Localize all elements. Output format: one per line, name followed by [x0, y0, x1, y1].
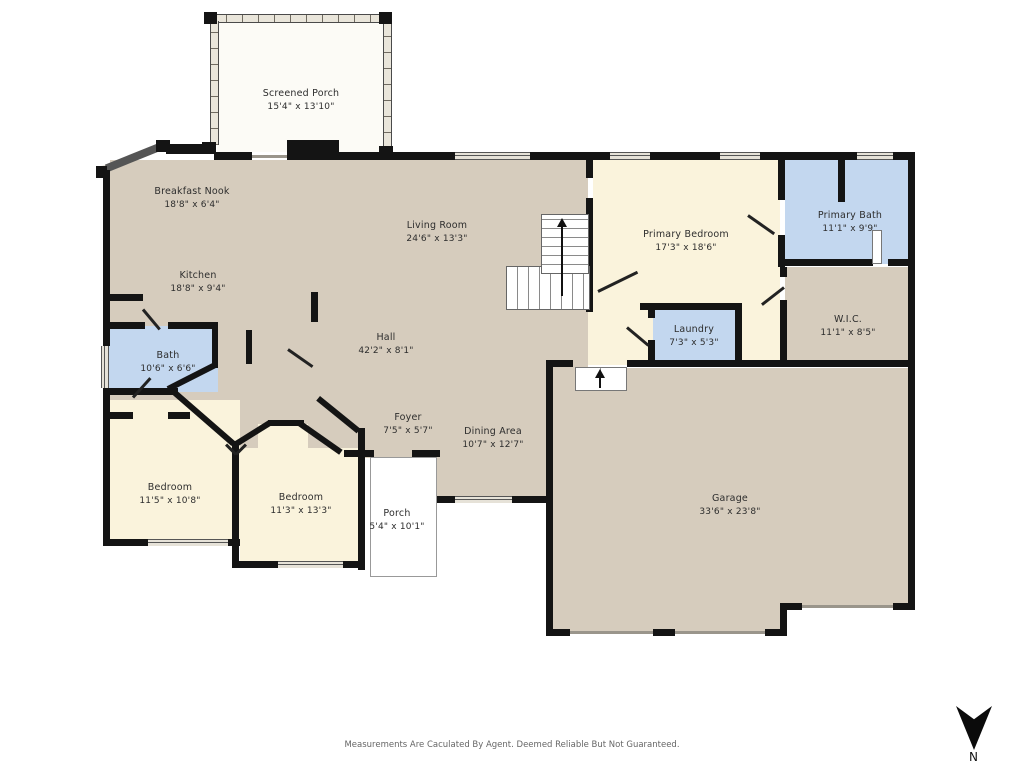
laundry-right-wall: [735, 310, 742, 365]
garage-right-bay-wall: [893, 603, 915, 610]
room-label-porch: Porch5'4" x 10'1": [369, 508, 424, 533]
wall-segment: [390, 152, 455, 160]
bedroom-2-bottom-wall: [232, 561, 278, 568]
bedroom-1-top-wall: [168, 412, 190, 419]
dining-window: [455, 496, 512, 503]
room-label-garage: Garage33'6" x 23'8": [699, 493, 760, 518]
room-label-kitchen: Kitchen18'8" x 9'4": [170, 270, 225, 295]
bath-right-wall: [212, 322, 218, 368]
porch-corner-post: [379, 12, 392, 24]
wic-left-wall: [780, 267, 787, 277]
room-label-bath: Bath10'6" x 6'6": [140, 350, 195, 375]
wall-segment: [530, 152, 610, 160]
garage-top-wall: [627, 360, 915, 367]
wall-segment: [166, 144, 208, 154]
garage-bottom-wall: [546, 629, 570, 636]
screen-wall-left: [210, 21, 219, 145]
bedrooms-divider-wall: [232, 441, 239, 568]
bath-top-wall: [168, 322, 218, 329]
primary-bed-bath-wall: [778, 152, 785, 200]
wall-segment: [214, 152, 252, 160]
bedroom-1-floor: [110, 400, 240, 542]
wic-left-wall: [780, 300, 787, 365]
dining-bottom-wall: [437, 496, 455, 503]
bedroom-1-bottom-wall: [228, 539, 240, 546]
wall-segment: [650, 152, 720, 160]
garage-step-arrow-head: [595, 369, 605, 378]
bath-wic-wall: [785, 259, 873, 266]
bedroom-2-right-wall: [358, 428, 365, 570]
kitchen-stub-wall: [103, 294, 143, 301]
bath-window: [101, 346, 109, 388]
room-label-breakfast-nook: Breakfast Nook18'8" x 6'4": [154, 186, 229, 211]
window: [857, 152, 893, 160]
room-label-laundry: Laundry7'3" x 5'3": [669, 324, 718, 349]
window: [455, 152, 530, 160]
bath-wic-wall: [888, 259, 915, 266]
primary-bedroom-bottom-wall: [640, 303, 742, 310]
wall-segment: [287, 152, 390, 160]
garage-right-bay-wall: [780, 603, 802, 610]
bedroom-1-bottom-wall: [103, 539, 148, 546]
kitchen-living-stub: [311, 292, 318, 322]
room-label-primary-bath: Primary Bath11'1" x 9'9": [818, 210, 882, 235]
window: [610, 152, 650, 160]
dining-bottom-wall: [512, 496, 553, 503]
garage-floor: [553, 368, 908, 608]
room-label-living-room: Living Room24'6" x 13'3": [406, 220, 467, 245]
room-label-dining-area: Dining Area10'7" x 12'7": [462, 426, 523, 451]
wall-left: [103, 170, 110, 346]
laundry-left-wall: [648, 310, 655, 318]
garage-door-opening: [675, 631, 765, 634]
bedroom-2-window: [278, 561, 343, 568]
primary-bed-bath-wall: [778, 235, 785, 267]
room-label-primary-bedroom: Primary Bedroom17'3" x 18'6": [643, 229, 729, 254]
porch-door-sill: [252, 155, 287, 158]
garage-door-opening: [802, 605, 893, 608]
screen-wall-top: [210, 14, 390, 23]
hall-closet-wall: [246, 330, 252, 364]
room-label-bedroom-2: Bedroom11'3" x 13'3": [270, 492, 331, 517]
living-primary-wall: [586, 152, 593, 178]
bedroom-2-bottom-wall: [343, 561, 365, 568]
room-label-screened-porch: Screened Porch15'4" x 13'10": [263, 88, 340, 113]
porch-corner-post: [204, 12, 217, 24]
stairs-arrow-line: [561, 226, 563, 296]
room-label-foyer: Foyer7'5" x 5'7": [383, 412, 432, 437]
garage-door-opening: [570, 631, 653, 634]
room-label-wic: W.I.C.11'1" x 8'5": [820, 314, 875, 339]
bath-top-wall: [103, 322, 145, 329]
primary-bath-stub-wall: [838, 152, 845, 202]
wic-door-leaf: [872, 230, 882, 264]
floor-plan: Screened Porch15'4" x 13'10" Breakfast N…: [0, 0, 1024, 768]
foyer-front-wall: [412, 450, 440, 457]
north-label: N: [969, 750, 978, 764]
window: [720, 152, 760, 160]
wall-right: [908, 152, 915, 610]
room-label-bedroom-1: Bedroom11'5" x 10'8": [139, 482, 200, 507]
screened-porch-floor: [217, 21, 383, 152]
stairs-arrow-head: [557, 218, 567, 227]
bedroom-1-window: [148, 539, 228, 546]
bedroom-1-top-wall: [103, 412, 133, 419]
room-label-hall: Hall42'2" x 8'1": [358, 332, 413, 357]
disclaimer-text: Measurements Are Caculated By Agent. Dee…: [0, 740, 1024, 750]
garage-bottom-wall: [653, 629, 675, 636]
screen-wall-right: [383, 21, 392, 149]
